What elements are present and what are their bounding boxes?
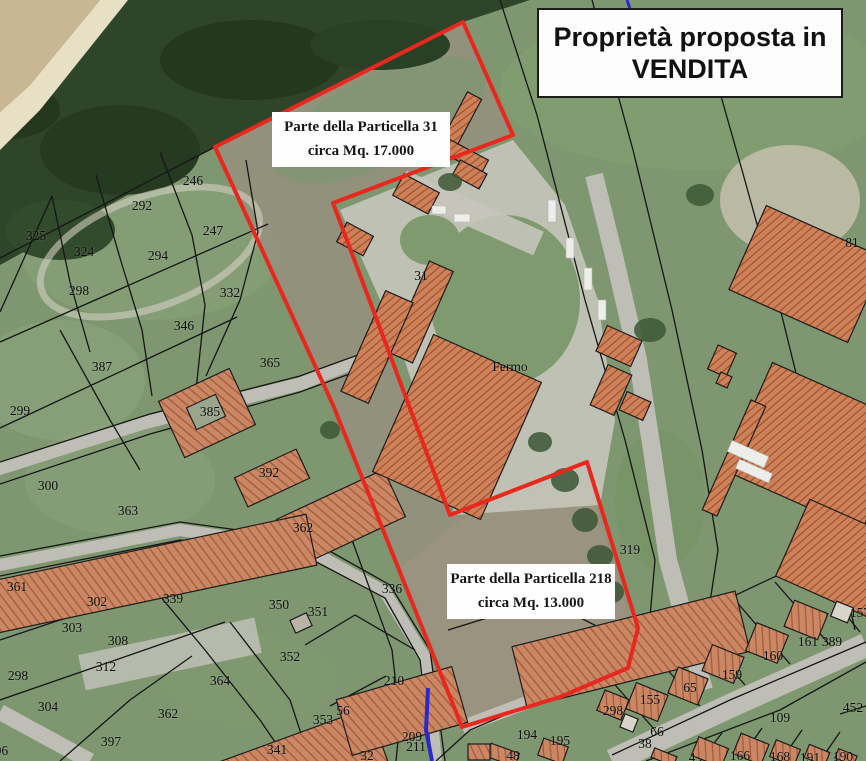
particella-31-line2: circa Mq. 17.000: [308, 140, 414, 163]
label-particella-31: Parte della Particella 31 circa Mq. 17.0…: [272, 112, 450, 167]
particella-31-line1: Parte della Particella 31: [284, 116, 438, 139]
title-box: Proprietà proposta in VENDITA: [537, 8, 843, 98]
label-particella-218: Parte della Particella 218 circa Mq. 13.…: [447, 564, 615, 619]
title-line1: Proprietà proposta in: [553, 21, 826, 53]
cadastral-aerial-map: 2462923253242472942983323463873652993853…: [0, 0, 866, 761]
particella-218-line2: circa Mq. 13.000: [478, 592, 584, 615]
particella-218-line1: Parte della Particella 218: [450, 568, 611, 591]
title-line2: VENDITA: [632, 53, 749, 85]
